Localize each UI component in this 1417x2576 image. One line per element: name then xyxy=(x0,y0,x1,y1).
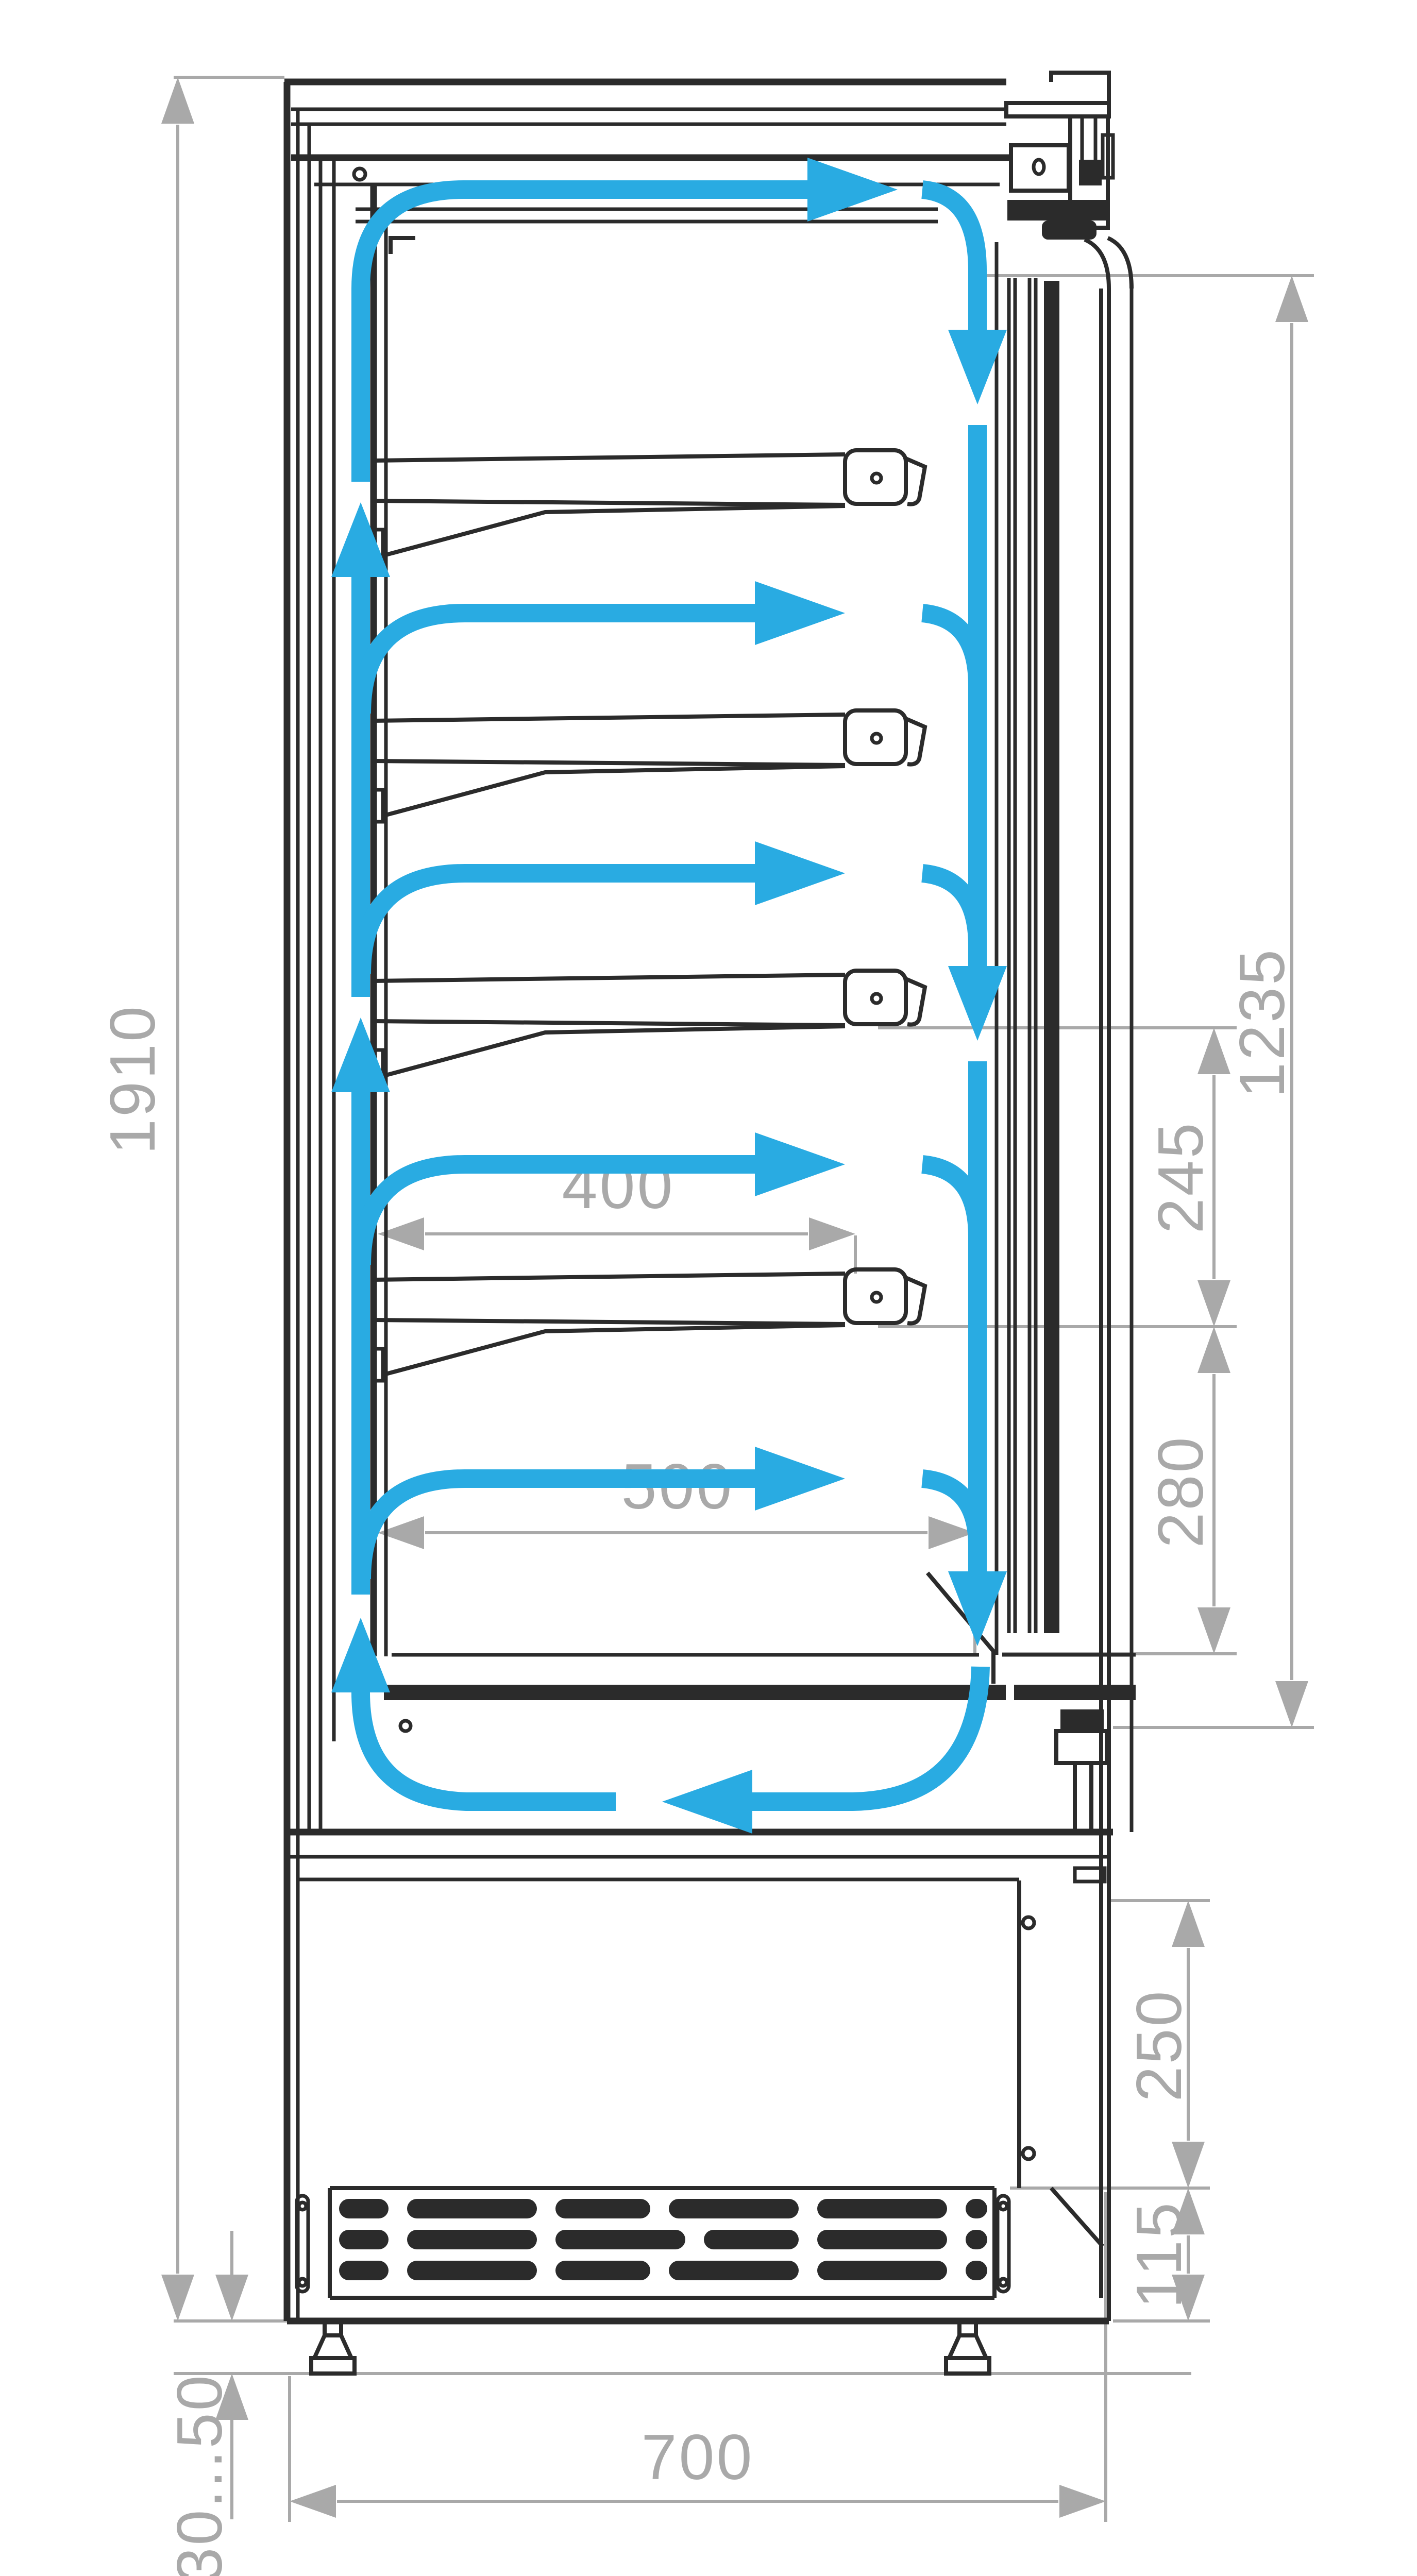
compartment-divider xyxy=(287,1832,1113,1882)
arrowhead-up-icon xyxy=(161,77,194,124)
adjustable-foot-right xyxy=(946,2321,989,2374)
arrowhead-down-icon xyxy=(1172,2142,1205,2188)
arrow-up-icon xyxy=(331,1618,390,1692)
machine-compartment xyxy=(287,1880,1109,2321)
arrow-right-icon xyxy=(755,581,845,645)
row-shaft xyxy=(362,613,755,714)
row-shaft xyxy=(362,873,755,974)
foot-flare xyxy=(949,2335,986,2358)
cabinet-section-drawing: 1910 1235 245 280 xyxy=(0,0,1417,2576)
hinge-plate xyxy=(1011,145,1069,191)
door-bottom-rail xyxy=(1014,1685,1136,1700)
bottom-hinge-pad xyxy=(1060,1709,1104,1731)
arrowhead-up-icon xyxy=(1197,1028,1230,1074)
row-shaft xyxy=(362,1164,755,1265)
arrowhead-right-icon xyxy=(809,1217,855,1250)
arrowhead-down-icon xyxy=(1275,1681,1308,1727)
adjustable-foot-left xyxy=(311,2321,355,2374)
shelf-1 xyxy=(373,450,925,562)
arrowhead-down-icon xyxy=(1197,1280,1230,1327)
return-to-duct-curve xyxy=(361,1692,616,1802)
arrowhead-up-icon xyxy=(1197,1327,1230,1373)
airflow-shelf-rows xyxy=(362,581,977,1579)
foot-flare xyxy=(314,2335,351,2358)
hinge-pin xyxy=(1079,160,1102,185)
interior-floor xyxy=(384,1573,1006,1731)
top-cap xyxy=(1051,73,1109,103)
rail-hook xyxy=(391,238,415,254)
arrowhead-up-icon xyxy=(1172,1901,1205,1947)
dimension-label-1910: 1910 xyxy=(97,1004,168,1155)
top-hinge-assembly xyxy=(1006,103,1113,240)
door-gasket-top xyxy=(1042,221,1097,240)
interior-ceiling xyxy=(356,209,997,1655)
hinge-base-band xyxy=(1007,200,1107,221)
grille-slots xyxy=(339,2199,987,2280)
hinge-pin-lines xyxy=(1082,116,1095,160)
arrowhead-down-icon xyxy=(161,2275,194,2321)
shelf-4 xyxy=(373,1269,925,1381)
dimension-label-245: 245 xyxy=(1145,1121,1217,1234)
dimension-label-250: 250 xyxy=(1124,1989,1195,2102)
drawing-stage: 1910 1235 245 280 xyxy=(0,0,1417,2576)
bottom-hinge-pin xyxy=(1075,1763,1091,1832)
dimension-label-280: 280 xyxy=(1145,1435,1217,1548)
corner-slant-panel xyxy=(1051,2188,1103,2246)
bolt-icon xyxy=(1023,2148,1034,2159)
arrowhead-left-icon xyxy=(290,2485,336,2518)
top-panel xyxy=(284,73,1109,184)
foot-base xyxy=(311,2358,355,2374)
glass-door xyxy=(1002,238,1136,2321)
grille-end-trim-left xyxy=(297,2196,308,2292)
dimension-label-30-50: 30...50 xyxy=(164,2373,235,2576)
dimension-overall-height: 1910 xyxy=(97,77,287,2321)
arrow-right-icon xyxy=(755,1132,845,1196)
arrowhead-up-icon xyxy=(1275,276,1308,322)
ventilation-grille xyxy=(297,2188,1009,2298)
dimension-label-700: 700 xyxy=(642,2422,754,2493)
bolt-icon xyxy=(1034,160,1044,174)
arrow-right-icon xyxy=(755,841,845,905)
floor-band xyxy=(384,1685,1006,1700)
bolt-icon xyxy=(354,168,365,180)
arrowhead-down-icon xyxy=(1197,1607,1230,1654)
door-shoulder-curve xyxy=(1108,238,1132,289)
grille-end-trim-right xyxy=(998,2196,1009,2292)
arrowhead-down-icon xyxy=(215,2275,248,2321)
corner-branch-curve xyxy=(922,190,977,270)
foot-base xyxy=(946,2358,989,2374)
bolt-icon xyxy=(400,1721,411,1731)
arrow-right-icon xyxy=(807,158,898,222)
shelf-3 xyxy=(373,971,925,1082)
arrow-right-icon xyxy=(755,1447,845,1511)
shelf-2 xyxy=(373,710,925,822)
door-shoulder-curve xyxy=(1085,240,1109,289)
dimension-label-115: 115 xyxy=(1124,2200,1195,2309)
top-shaft xyxy=(361,190,807,482)
dimension-label-1235: 1235 xyxy=(1227,947,1298,1098)
arrow-left-icon xyxy=(662,1770,752,1834)
arrowhead-right-icon xyxy=(1059,2485,1106,2518)
dimension-machine-compartment: 250 xyxy=(1111,1901,1210,2188)
door-gasket-band xyxy=(1044,281,1059,1633)
airflow-top-arrow xyxy=(361,158,977,482)
bolt-icon xyxy=(1023,1917,1034,1928)
